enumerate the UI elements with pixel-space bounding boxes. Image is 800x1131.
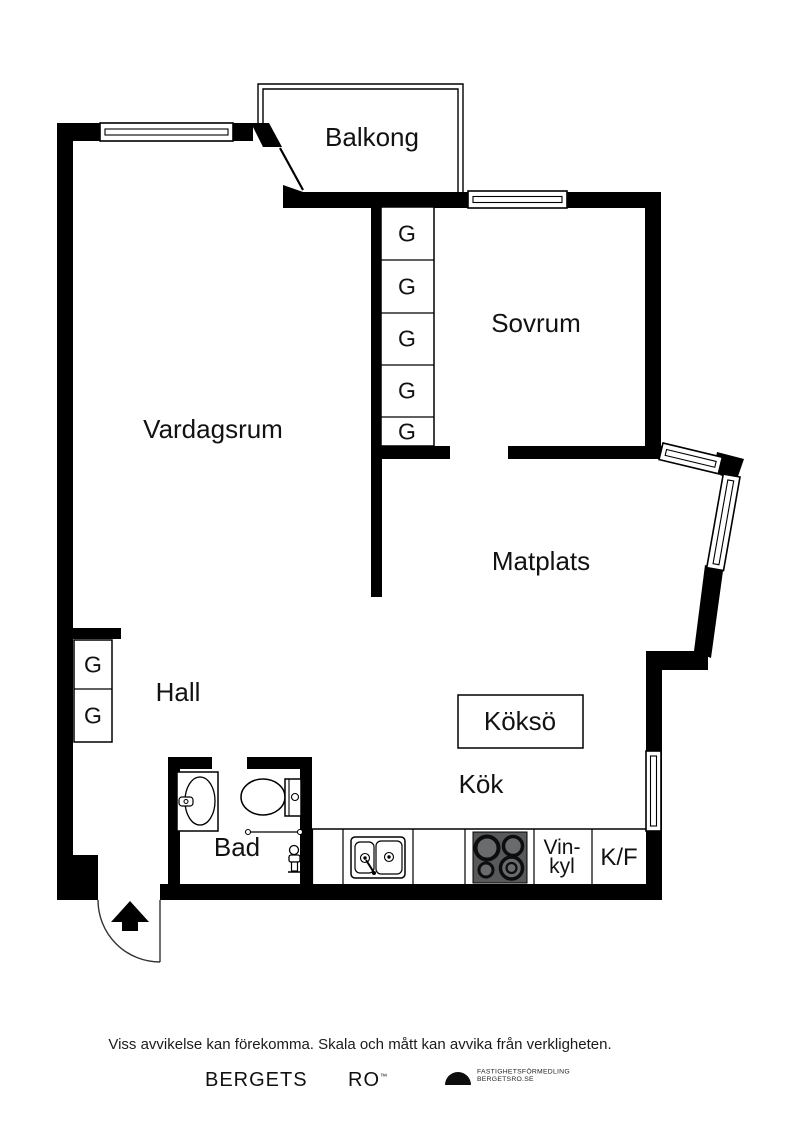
window-kitchen-right [646, 751, 661, 831]
bathroom-sink-icon [177, 772, 218, 831]
wall-sovrum-bottom-right [508, 446, 668, 459]
logo-tagline: FASTIGHETSFÖRMEDLING BERGETSRO.SE [477, 1068, 570, 1083]
closet-label: G [398, 380, 416, 403]
wall-left [57, 123, 73, 856]
closet-label: G [398, 276, 416, 299]
window-bay-lower [707, 474, 740, 571]
kitchen-counter [312, 829, 646, 884]
closet-label: G [398, 223, 416, 246]
label-wine-fridge: Vin- kyl [544, 838, 581, 876]
logo-tagline-line2: BERGETSRO.SE [477, 1075, 570, 1082]
disclaimer-text: Viss avvikelse kan förekomma. Skala och … [0, 1036, 720, 1053]
floor-plan-page: Balkong Sovrum Vardagsrum Matplats Hall … [0, 0, 800, 1131]
closet-label: G [398, 328, 416, 351]
balcony-door-leaf [280, 148, 303, 190]
closet-label: G [398, 421, 416, 444]
label-wine-fridge-line2: kyl [544, 857, 581, 876]
brand-word-ro-text: RO [348, 1069, 380, 1091]
logo-semicircle-icon [445, 1072, 471, 1085]
wall-bay-diagonal [694, 565, 723, 658]
room-label-vardagsrum: Vardagsrum [143, 416, 283, 442]
kitchen-sink-icon [351, 837, 405, 878]
wall-sovrum-right [645, 192, 661, 454]
wall-hall-stub [57, 628, 121, 639]
label-fridge-freezer: K/F [600, 846, 637, 870]
logo-tagline-line1: FASTIGHETSFÖRMEDLING [477, 1068, 570, 1075]
room-label-sovrum: Sovrum [491, 310, 581, 336]
window-sovrum [468, 191, 567, 208]
wall-top-angled-end [251, 123, 282, 147]
wall-bottom [160, 884, 662, 900]
wall-bath-top-left [168, 757, 212, 769]
window-bay-upper [659, 443, 722, 474]
brand-word-bergets: BERGETS [205, 1069, 308, 1092]
stove-icon [473, 832, 527, 883]
window-top-left [100, 123, 233, 141]
closet-label: G [84, 654, 102, 677]
wall-entry-block [57, 855, 98, 900]
room-label-bad: Bad [214, 834, 260, 860]
room-label-matplats: Matplats [492, 548, 590, 574]
shower-mixer-icon [288, 846, 301, 873]
wall-sovrum-bottom-left [371, 446, 450, 459]
closet-label: G [84, 705, 102, 728]
toilet-icon [241, 779, 301, 816]
label-kokso: Köksö [484, 708, 556, 734]
entrance-arrow-icon [111, 901, 149, 931]
brand-word-ro: RO™ [348, 1069, 387, 1092]
entrance [98, 900, 160, 962]
room-label-hall: Hall [156, 679, 201, 705]
room-label-kok: Kök [459, 771, 504, 797]
trademark-mark: ™ [380, 1073, 387, 1080]
room-label-balkong: Balkong [325, 124, 419, 150]
wall-bath-right [300, 757, 312, 885]
